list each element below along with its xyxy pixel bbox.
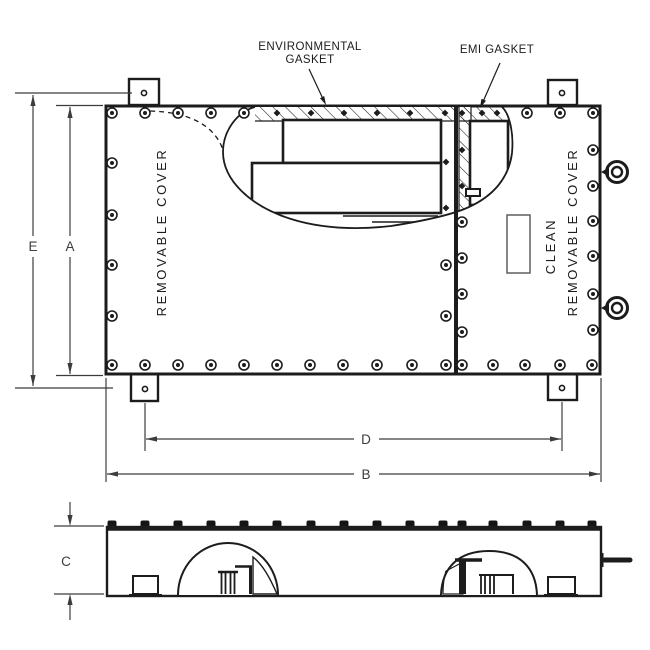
- environmental-gasket-label-line2: GASKET: [285, 54, 334, 66]
- enclosure-technical-drawing: REMOVABLE COVER CLEAN REMOVABLE COVER EN…: [0, 0, 650, 650]
- emi-gasket-leader-line: [480, 63, 500, 108]
- dimension-b: B: [106, 378, 601, 482]
- nameplate: [507, 215, 530, 273]
- side-view: [107, 521, 630, 597]
- drawing-page: REMOVABLE COVER CLEAN REMOVABLE COVER EN…: [0, 0, 650, 650]
- cutaway-details: [252, 106, 510, 222]
- side-handle-pin: [602, 553, 630, 567]
- right-cover-label-removable: REMOVABLE COVER: [565, 148, 580, 317]
- environmental-gasket-leader-line: [309, 69, 326, 105]
- left-cover-label: REMOVABLE COVER: [154, 148, 169, 317]
- dimension-d: D: [145, 402, 562, 451]
- side-foot-right: [544, 577, 578, 596]
- mounting-tab-top-right: [548, 80, 577, 105]
- callouts: ENVIRONMENTAL GASKET EMI GASKET: [258, 41, 534, 108]
- environmental-gasket-label-line1: ENVIRONMENTAL: [258, 41, 362, 53]
- dimension-c: C: [54, 502, 104, 620]
- dimension-d-label: D: [361, 432, 371, 447]
- right-cover-label-clean: CLEAN: [543, 218, 558, 274]
- dimension-a: A: [56, 106, 103, 376]
- dimension-c-label: C: [61, 554, 71, 569]
- dimension-e-label: E: [28, 239, 37, 254]
- side-foot-left: [129, 576, 162, 596]
- dimension-a-label: A: [65, 239, 74, 254]
- lifting-ring-top-icon: [601, 162, 628, 183]
- mounting-tab-bottom-left: [131, 374, 158, 401]
- main-view: REMOVABLE COVER CLEAN REMOVABLE COVER: [106, 79, 628, 401]
- dimension-b-label: B: [361, 467, 370, 482]
- emi-gasket-label: EMI GASKET: [460, 44, 534, 56]
- mounting-tab-top-left: [129, 79, 159, 105]
- mounting-tab-bottom-right: [548, 374, 577, 400]
- lifting-ring-bottom-icon: [601, 298, 628, 319]
